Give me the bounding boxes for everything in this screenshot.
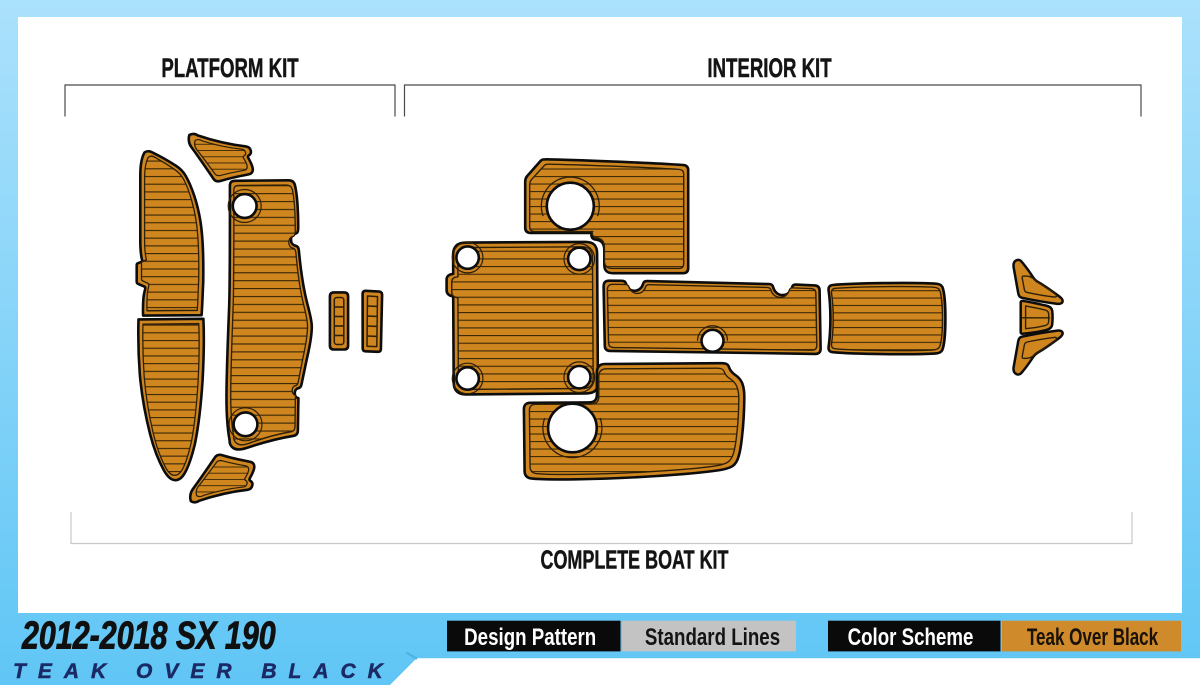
svg-text:Color Scheme: Color Scheme <box>848 624 974 651</box>
svg-text:Teak Over Black: Teak Over Black <box>1027 624 1159 651</box>
svg-text:PLATFORM KIT: PLATFORM KIT <box>161 53 298 83</box>
svg-text:Design Pattern: Design Pattern <box>464 624 596 651</box>
svg-text:INTERIOR KIT: INTERIOR KIT <box>707 53 831 83</box>
svg-text:2012-2018 SX 190: 2012-2018 SX 190 <box>21 614 276 657</box>
svg-text:Standard Lines: Standard Lines <box>645 624 780 651</box>
svg-text:TEAK OVER BLACK: TEAK OVER BLACK <box>13 660 395 683</box>
svg-text:COMPLETE BOAT KIT: COMPLETE BOAT KIT <box>541 545 729 574</box>
